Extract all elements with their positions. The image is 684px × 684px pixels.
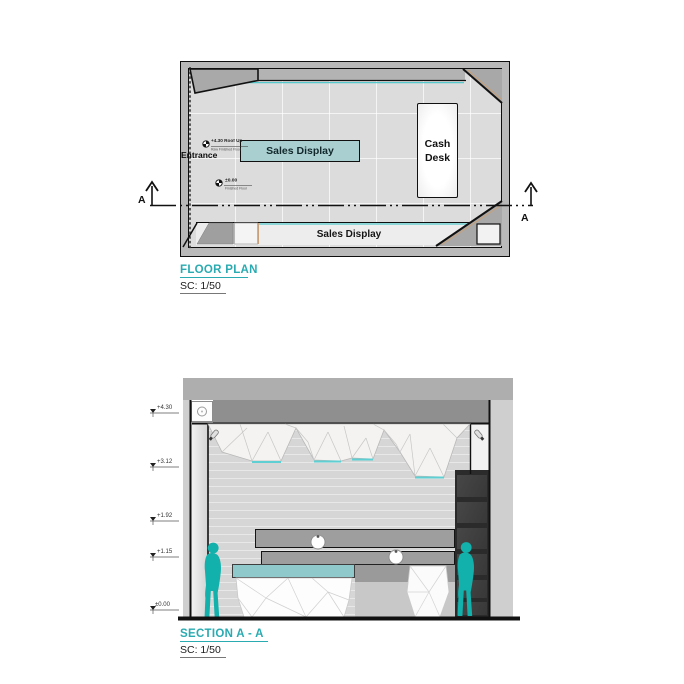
section-scale: SC: 1/50 [180, 644, 221, 656]
section-floor-line [178, 617, 520, 621]
section-title-rule [180, 641, 268, 642]
drawing-sheet: Sales Display Cash Desk Sales Display [0, 0, 684, 684]
plan-floor-level-value: ±0.00 [225, 178, 237, 183]
section-title: SECTION A - A [180, 628, 264, 640]
section-counter-top [232, 564, 355, 578]
plan-roof-level-note: Raw Finished Floor [211, 148, 241, 151]
section-level-label: ±0.00 [155, 602, 170, 608]
section-level-label: +3.12 [157, 459, 172, 465]
plan-bottom-display-label: Sales Display [317, 229, 381, 240]
section-marker-label-right: A [521, 212, 529, 224]
section-cut-arrow-left [146, 182, 158, 206]
section-level-label: +1.15 [157, 549, 172, 555]
plan-floor-level-note: Finished Floor [225, 187, 247, 190]
section-dark-shelving [455, 470, 489, 617]
plan-roof-level-value: +4.30 Roof Up [211, 139, 242, 144]
plan-entrance-label: Entrance [181, 150, 217, 160]
section-scale-rule [180, 657, 226, 658]
section-corner-fixture [191, 401, 213, 422]
section-wall-shelf-upper [255, 529, 455, 548]
floor-plan-title-rule [180, 277, 248, 278]
section-cut-arrow-right [525, 183, 537, 206]
section-level-label: +4.30 [157, 405, 172, 411]
section-level-ticks [150, 409, 179, 614]
section-right-wall-face [471, 423, 489, 474]
plan-sales-display-label: Sales Display [266, 145, 334, 157]
dark-shelf-cell [457, 475, 487, 497]
floor-plan-scale-rule [180, 293, 226, 294]
section-back-counter-base [355, 582, 455, 617]
section-right-outer-column [489, 400, 513, 618]
floor-plan-scale: SC: 1/50 [180, 280, 221, 292]
section-left-outer-column [183, 400, 191, 618]
section-back-counter [355, 564, 455, 582]
section-top-band [183, 378, 513, 400]
plan-cash-desk: Cash Desk [417, 103, 458, 198]
floor-plan-title: FLOOR PLAN [180, 264, 258, 276]
dark-shelf-cell [457, 528, 487, 549]
dark-shelf-cell [457, 502, 487, 523]
plan-cash-desk-label-line2: Desk [425, 152, 450, 164]
plan-cash-desk-label-line1: Cash [425, 138, 451, 150]
dark-shelf-cell [457, 602, 487, 615]
section-left-wall-face [191, 423, 208, 618]
dark-shelf-cell [457, 554, 487, 575]
plan-bottom-display-band: Sales Display [196, 222, 502, 245]
dark-shelf-cell [457, 580, 487, 598]
plan-top-shelf-band [197, 69, 465, 81]
section-level-label: +1.92 [157, 513, 172, 519]
plan-sales-display-unit: Sales Display [240, 140, 360, 162]
section-ceiling-slab [213, 400, 489, 423]
section-marker-label-left: A [138, 194, 146, 206]
